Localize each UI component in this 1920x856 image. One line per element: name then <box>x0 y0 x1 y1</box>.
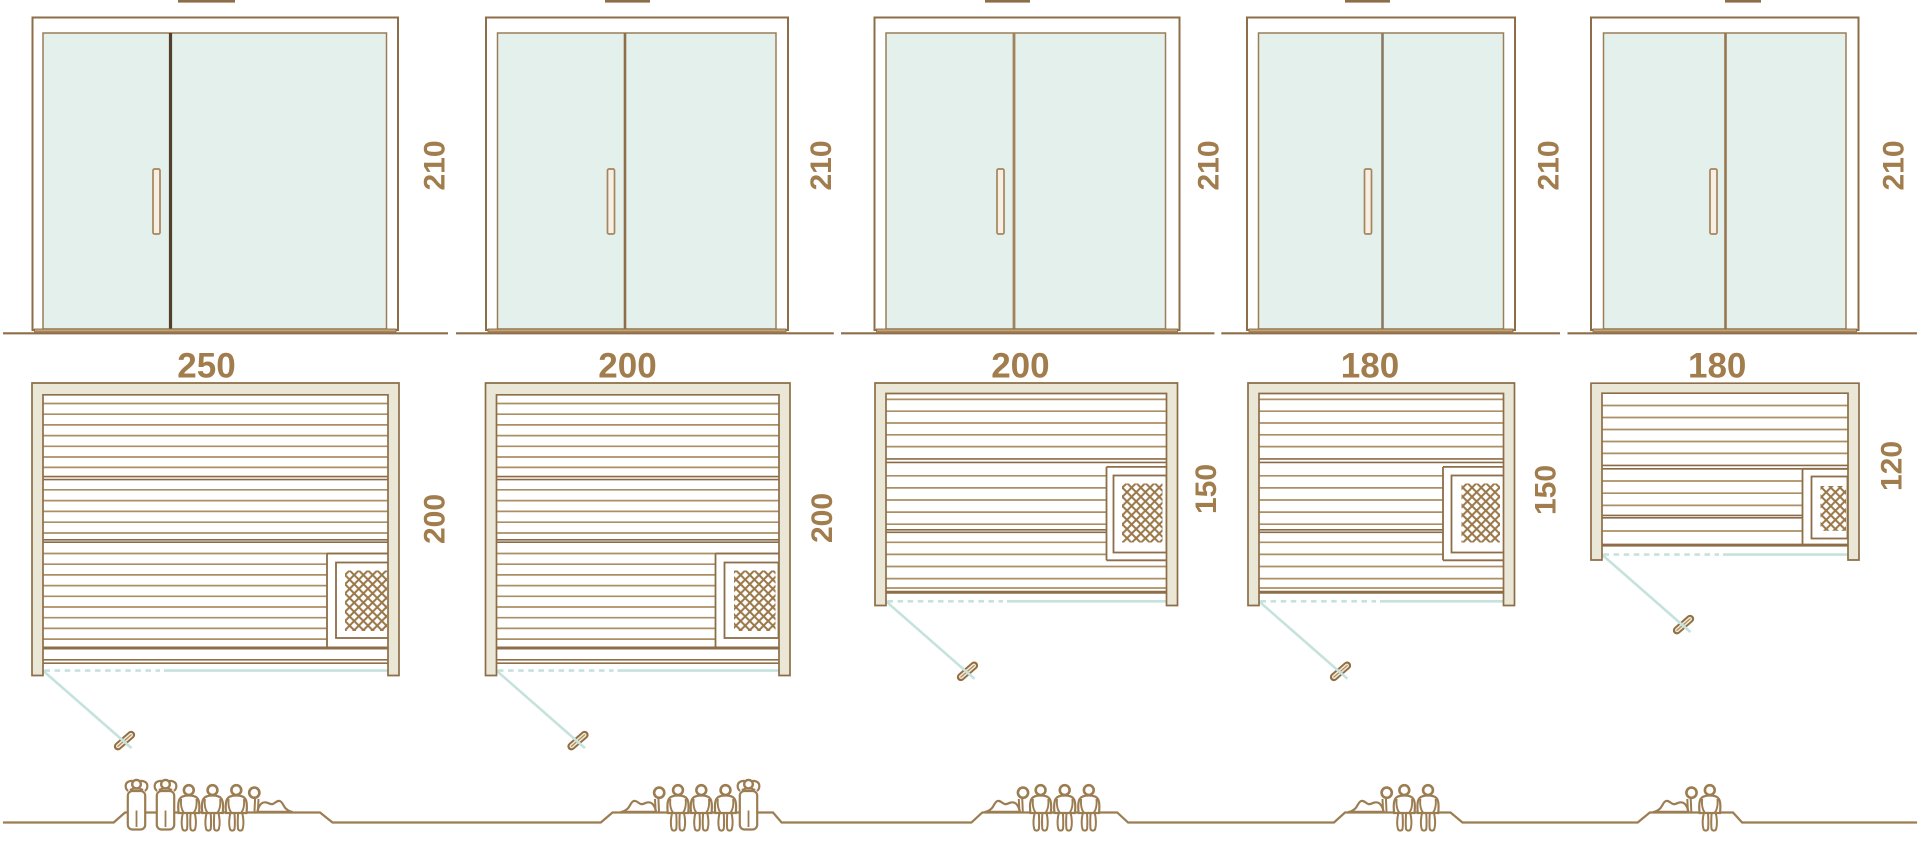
svg-text:210: 210 <box>1533 140 1566 190</box>
svg-text:150: 150 <box>1190 464 1223 514</box>
svg-text:200: 200 <box>991 347 1049 386</box>
svg-text:210: 210 <box>1878 140 1911 190</box>
svg-text:180: 180 <box>1341 347 1399 386</box>
svg-text:200: 200 <box>806 493 839 543</box>
svg-text:200: 200 <box>419 494 452 544</box>
svg-text:180: 180 <box>1688 347 1746 386</box>
svg-text:120: 120 <box>1876 441 1909 491</box>
svg-text:150: 150 <box>1530 465 1563 515</box>
svg-text:210: 210 <box>805 140 838 190</box>
svg-text:250: 250 <box>177 347 235 386</box>
svg-text:200: 200 <box>598 347 656 386</box>
svg-text:210: 210 <box>419 140 452 190</box>
svg-text:210: 210 <box>1192 140 1225 190</box>
